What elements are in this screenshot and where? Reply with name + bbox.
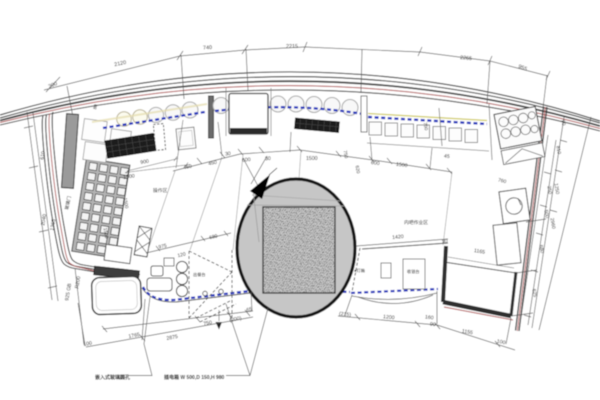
svg-text:插电箱 W 500,D 150,H 980: 插电箱 W 500,D 150,H 980 bbox=[164, 374, 225, 381]
svg-text:操作区: 操作区 bbox=[153, 187, 168, 194]
svg-text:600: 600 bbox=[371, 160, 381, 167]
svg-text:45: 45 bbox=[443, 153, 450, 160]
svg-text:30: 30 bbox=[265, 156, 271, 162]
svg-text:1500: 1500 bbox=[306, 156, 318, 162]
svg-text:2265: 2265 bbox=[460, 55, 473, 62]
svg-text:740: 740 bbox=[203, 45, 212, 52]
svg-text:160: 160 bbox=[425, 314, 434, 321]
svg-text:●灯箱: ●灯箱 bbox=[354, 267, 365, 274]
svg-text:1200: 1200 bbox=[383, 314, 395, 321]
svg-text:嵌入式玻璃圆孔: 嵌入式玻璃圆孔 bbox=[95, 374, 130, 381]
svg-text:内吧作业区: 内吧作业区 bbox=[404, 219, 428, 226]
svg-text:收银台: 收银台 bbox=[407, 268, 420, 275]
svg-text:90: 90 bbox=[442, 239, 448, 245]
svg-text:出餐台: 出餐台 bbox=[193, 271, 206, 278]
svg-text:1420: 1420 bbox=[392, 234, 404, 241]
svg-text:2215: 2215 bbox=[286, 44, 298, 50]
svg-text:600: 600 bbox=[242, 157, 251, 164]
svg-text:90: 90 bbox=[430, 322, 437, 329]
svg-text:30: 30 bbox=[225, 151, 232, 158]
